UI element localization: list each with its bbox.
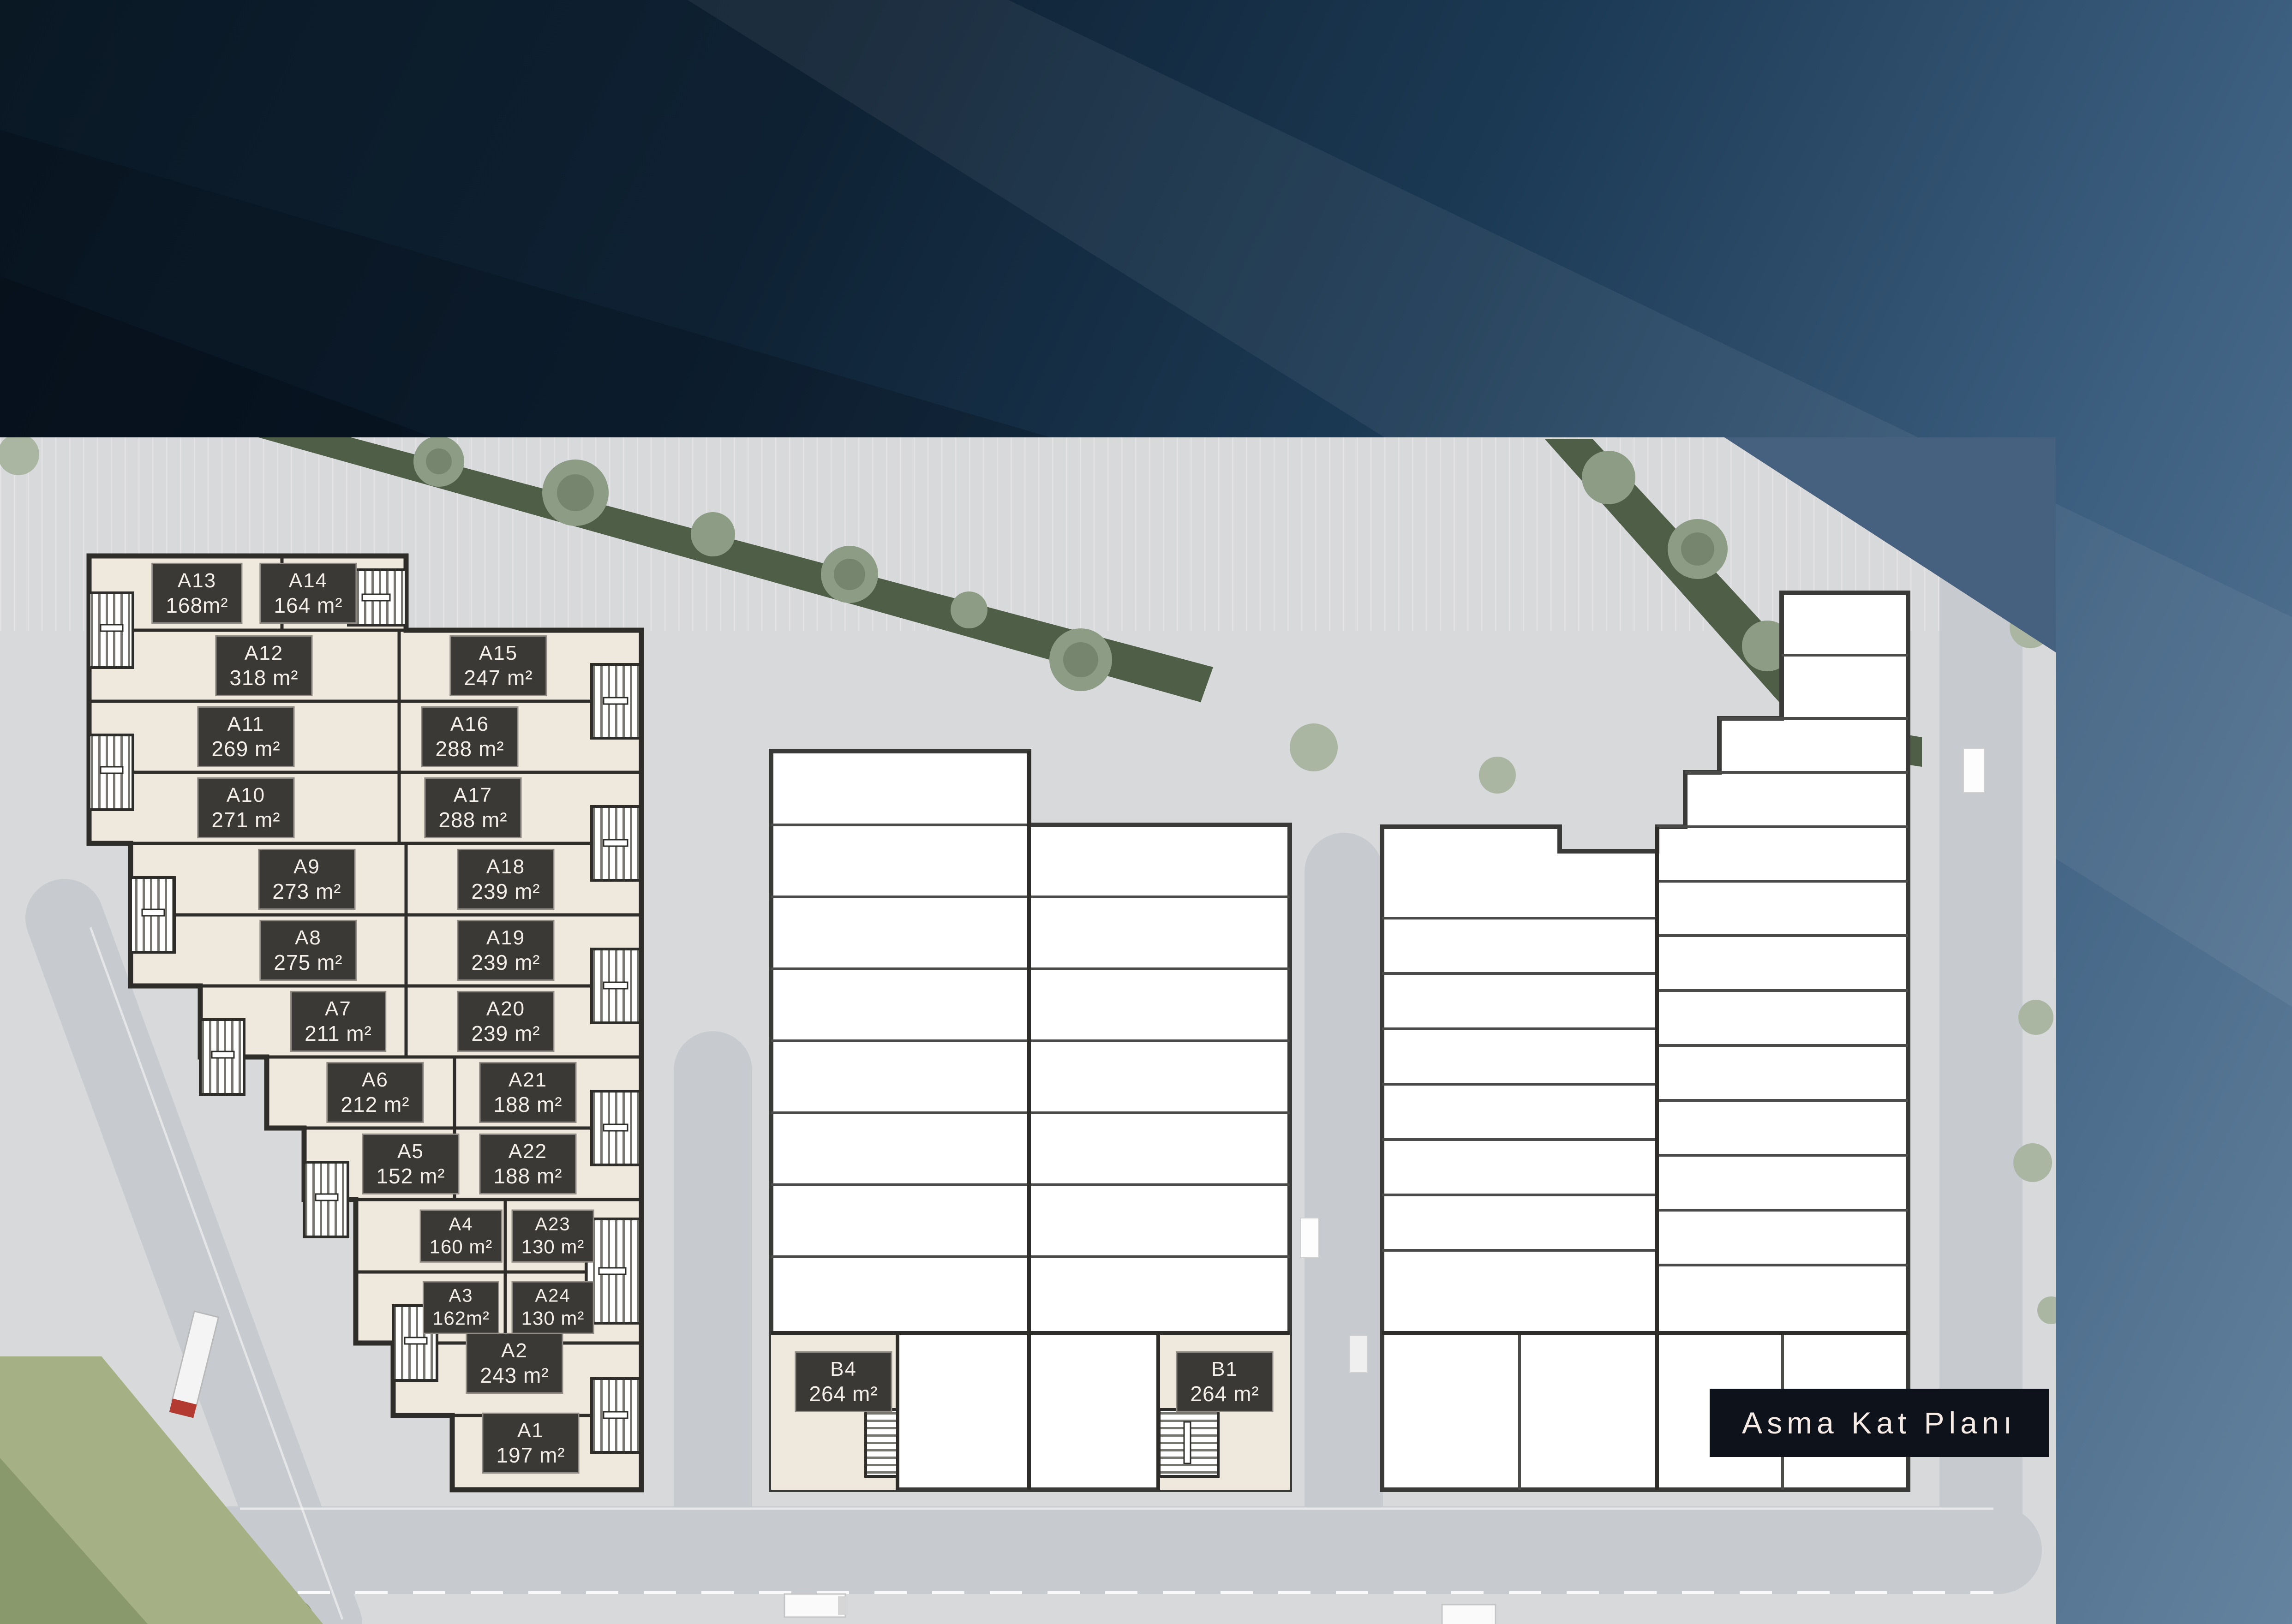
- unit-hotspot-a10[interactable]: A10271 m²: [197, 777, 294, 838]
- unit-id: A21: [493, 1068, 562, 1092]
- unit-hotspot-a15[interactable]: A15247 m²: [449, 635, 547, 696]
- unit-area: 162m²: [432, 1307, 490, 1330]
- stairs-icon: [131, 878, 174, 952]
- unit-id: A3: [432, 1285, 490, 1307]
- unit-hotspot-a20[interactable]: A20239 m²: [457, 991, 554, 1052]
- stairs-icon: [586, 1219, 640, 1323]
- unit-id: A19: [471, 926, 540, 950]
- site-plan-render: A13168m² A14164 m² A12318 m² A15247 m² A…: [0, 437, 2056, 1624]
- stairs-icon: [89, 735, 133, 810]
- unit-hotspot-a12[interactable]: A12318 m²: [215, 635, 312, 696]
- unit-hotspot-a6[interactable]: A6212 m²: [326, 1062, 424, 1123]
- stairs-icon: [592, 664, 640, 738]
- unit-hotspot-a1[interactable]: A1197 m²: [482, 1413, 579, 1474]
- unit-area: 275 m²: [274, 950, 342, 975]
- stairs-icon: [89, 593, 133, 668]
- unit-id: A6: [341, 1068, 409, 1092]
- unit-area: 188 m²: [493, 1164, 562, 1188]
- unit-area: 264 m²: [1190, 1381, 1259, 1406]
- unit-id: A5: [376, 1140, 445, 1164]
- unit-area: 212 m²: [341, 1092, 409, 1117]
- unit-hotspot-a14[interactable]: A14164 m²: [259, 563, 357, 624]
- stairs-icon: [866, 1409, 898, 1476]
- unit-id: A23: [521, 1214, 585, 1236]
- unit-id: A1: [496, 1419, 565, 1443]
- unit-area: 197 m²: [496, 1443, 565, 1468]
- floor-plan-title-badge: Asma Kat Planı: [1710, 1389, 2049, 1457]
- unit-area: 211 m²: [305, 1021, 372, 1046]
- unit-area: 188 m²: [493, 1092, 562, 1117]
- unit-area: 160 m²: [430, 1236, 493, 1259]
- unit-area: 243 m²: [480, 1363, 549, 1388]
- unit-hotspot-b1[interactable]: B1264 m²: [1176, 1351, 1273, 1412]
- stairs-icon: [592, 1379, 640, 1452]
- unit-id: A15: [464, 641, 533, 665]
- stairs-icon: [200, 1020, 244, 1094]
- unit-id: A4: [430, 1214, 493, 1236]
- unit-area: 273 m²: [272, 879, 341, 904]
- stairs-icon: [592, 949, 640, 1023]
- stairs-icon: [592, 806, 640, 880]
- unit-area: 269 m²: [211, 736, 280, 761]
- unit-id: B4: [809, 1357, 878, 1381]
- unit-hotspot-a23[interactable]: A23130 m²: [512, 1210, 594, 1263]
- unit-id: A22: [493, 1140, 562, 1164]
- unit-hotspot-a9[interactable]: A9273 m²: [258, 849, 355, 910]
- building-c: [1382, 593, 1908, 1490]
- unit-hotspot-a7[interactable]: A7211 m²: [290, 991, 386, 1052]
- unit-id: A9: [272, 855, 341, 879]
- unit-id: A16: [435, 712, 504, 736]
- stairs-icon: [348, 570, 406, 625]
- unit-id: A10: [211, 783, 280, 807]
- unit-id: A24: [521, 1285, 585, 1307]
- unit-area: 152 m²: [376, 1164, 445, 1188]
- unit-id: A17: [438, 783, 507, 807]
- unit-area: 164 m²: [274, 593, 342, 618]
- unit-id: A20: [471, 997, 540, 1021]
- unit-area: 168m²: [166, 593, 228, 618]
- unit-hotspot-a11[interactable]: A11269 m²: [197, 706, 294, 767]
- unit-hotspot-a5[interactable]: A5152 m²: [362, 1134, 459, 1194]
- unit-id: A13: [166, 569, 228, 593]
- stairs-icon: [592, 1091, 640, 1165]
- unit-area: 239 m²: [471, 879, 540, 904]
- unit-id: A2: [480, 1339, 549, 1363]
- unit-hotspot-a17[interactable]: A17288 m²: [424, 777, 521, 838]
- unit-area: 264 m²: [809, 1381, 878, 1406]
- unit-id: B1: [1190, 1357, 1259, 1381]
- unit-id: A11: [211, 712, 280, 736]
- unit-hotspot-b4[interactable]: B4264 m²: [795, 1351, 892, 1412]
- unit-area: 239 m²: [471, 1021, 540, 1046]
- unit-area: 288 m²: [435, 736, 504, 761]
- unit-area: 130 m²: [521, 1307, 585, 1330]
- unit-area: 247 m²: [464, 665, 533, 690]
- stairs-icon: [304, 1162, 348, 1237]
- unit-id: A14: [274, 569, 342, 593]
- unit-hotspot-a19[interactable]: A19239 m²: [457, 920, 554, 981]
- unit-hotspot-a2[interactable]: A2243 m²: [466, 1333, 563, 1394]
- unit-hotspot-a13[interactable]: A13168m²: [151, 563, 242, 624]
- unit-area: 130 m²: [521, 1236, 585, 1259]
- unit-id: A8: [274, 926, 342, 950]
- unit-hotspot-a18[interactable]: A18239 m²: [457, 849, 554, 910]
- unit-hotspot-a4[interactable]: A4160 m²: [420, 1210, 503, 1263]
- stairs-icon: [1159, 1409, 1218, 1476]
- unit-hotspot-a22[interactable]: A22188 m²: [479, 1134, 576, 1194]
- unit-id: A12: [229, 641, 298, 665]
- unit-id: A18: [471, 855, 540, 879]
- unit-hotspot-a21[interactable]: A21188 m²: [479, 1062, 576, 1123]
- unit-hotspot-a8[interactable]: A8275 m²: [259, 920, 357, 981]
- unit-id: A7: [305, 997, 372, 1021]
- unit-area: 271 m²: [211, 807, 280, 832]
- unit-area: 318 m²: [229, 665, 298, 690]
- unit-hotspot-a3[interactable]: A3162m²: [423, 1281, 499, 1334]
- unit-hotspot-a24[interactable]: A24130 m²: [512, 1281, 594, 1334]
- unit-area: 239 m²: [471, 950, 540, 975]
- unit-area: 288 m²: [438, 807, 507, 832]
- page: A13168m² A14164 m² A12318 m² A15247 m² A…: [0, 0, 2292, 1624]
- unit-hotspot-a16[interactable]: A16288 m²: [421, 706, 518, 767]
